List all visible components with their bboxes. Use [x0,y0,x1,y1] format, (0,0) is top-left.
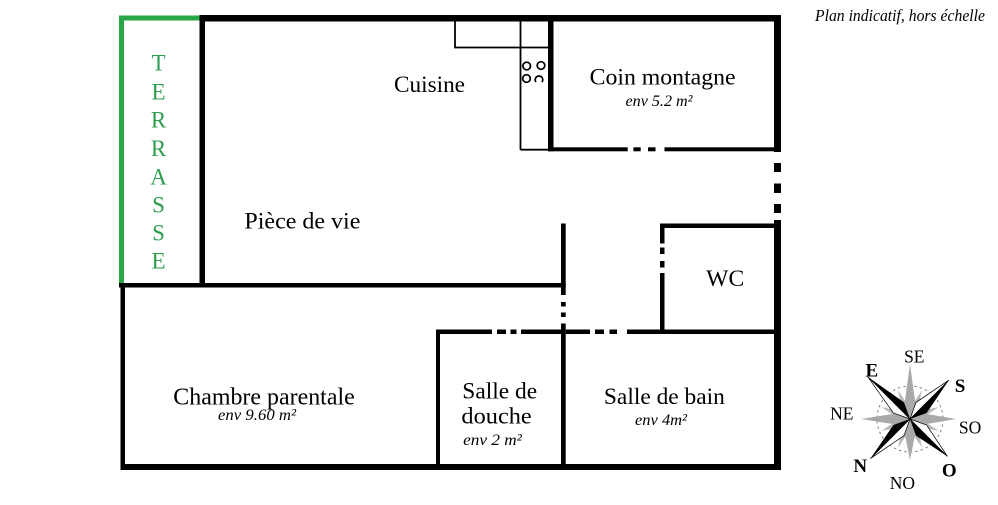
svg-text:env 9.60 m²: env 9.60 m² [218,407,297,424]
svg-text:douche: douche [461,403,531,428]
svg-text:Pièce de vie: Pièce de vie [244,209,360,234]
svg-text:E: E [151,249,165,274]
svg-text:SO: SO [959,418,981,438]
svg-text:Plan indicatif, hors échelle: Plan indicatif, hors échelle [814,6,985,25]
svg-text:E: E [151,79,165,104]
svg-text:env 2 m²: env 2 m² [463,432,523,449]
svg-text:Salle de: Salle de [462,379,537,404]
svg-text:S: S [152,221,165,246]
svg-text:A: A [150,165,167,190]
svg-text:R: R [151,108,167,133]
svg-text:N: N [853,456,867,477]
svg-text:Salle de bain: Salle de bain [604,384,726,409]
svg-text:SE: SE [904,347,924,367]
svg-text:Cuisine: Cuisine [394,72,465,97]
svg-text:NE: NE [830,404,853,424]
svg-text:T: T [151,51,165,76]
svg-text:env 4m²: env 4m² [635,412,688,429]
svg-text:O: O [942,461,957,482]
svg-text:env 5.2 m²: env 5.2 m² [626,93,694,110]
svg-text:E: E [865,361,878,382]
svg-text:S: S [955,376,966,397]
svg-text:S: S [152,192,165,217]
svg-text:NO: NO [890,473,915,493]
svg-text:WC: WC [706,266,744,291]
svg-text:Coin montagne: Coin montagne [590,65,736,90]
svg-text:R: R [151,136,167,161]
